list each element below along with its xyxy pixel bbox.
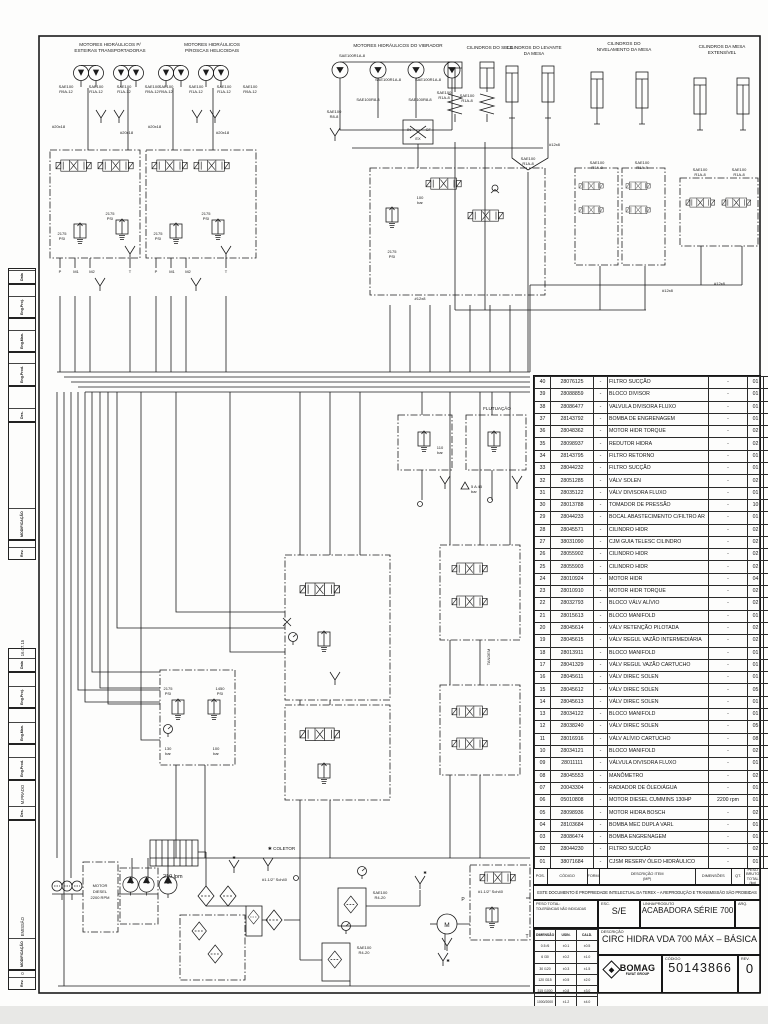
parts-row: 0228044230-FILTRO SUCÇÃO-02	[535, 844, 768, 856]
revision-field: Data16.07.15	[8, 648, 36, 672]
extension-cylinders	[694, 78, 749, 130]
svg-text:2200 RPM: 2200 RPM	[91, 895, 110, 900]
svg-text:✱ COLETOR: ✱ COLETOR	[268, 846, 296, 851]
svg-text:T: T	[129, 269, 132, 274]
rev-cell: REV. 0	[738, 955, 761, 993]
svg-text:T: T	[525, 934, 528, 940]
parts-row: 0528098936-MOTOR HIDRA BOSCH-02	[535, 807, 768, 819]
svg-text:PSI: PSI	[165, 691, 171, 696]
lift-cylinders	[506, 66, 554, 170]
svg-text:R1A-12: R1A-12	[117, 89, 131, 94]
col-dim: DIMENSÕES	[696, 869, 732, 884]
codigo-cell: CÓDIGO 50143866	[662, 955, 738, 993]
revision-field: Eng.Proj.	[8, 284, 36, 318]
parts-row: 1128016916-VÁLV ALÍVIO CARTUCHO-08	[535, 733, 768, 745]
seal-cylinders	[448, 62, 494, 122]
parts-row: 0428103684-BOMBA MEC DUPLA VARL-01	[535, 819, 768, 831]
svg-text:M2: M2	[89, 269, 95, 274]
parts-row: 2128015613-BLOCO MANIFOLD-01	[535, 610, 768, 622]
revision-field: Eng.Man.	[8, 318, 36, 352]
revision-field: Eng.Prod.	[8, 352, 36, 386]
arq-cell: ARQ.	[735, 900, 761, 928]
parts-row: 3728143792-BOMBA DE ENGRENAGEM-01	[535, 413, 768, 425]
svg-text:P: P	[461, 897, 465, 903]
parts-row: 0328086474-BOMBA ENGRENAGEM-01	[535, 831, 768, 843]
esc-cell: ESC. S/E	[598, 900, 640, 928]
parts-row: 1428045613-VÁLV DIREC SOLEN-01	[535, 696, 768, 708]
svg-text:TANDEM: TANDEM	[486, 649, 491, 666]
svg-text:R9A-12: R9A-12	[59, 89, 73, 94]
bomag-diamond-icon	[602, 960, 620, 978]
svg-text:P: P	[59, 269, 62, 274]
svg-text:DA MESA: DA MESA	[524, 51, 545, 56]
svg-text:bar: bar	[471, 489, 477, 494]
revision-field: Eng.Proj.	[8, 672, 36, 708]
svg-text:P: P	[155, 269, 158, 274]
svg-text:R9A-12: R9A-12	[145, 89, 159, 94]
revision-field: Eng.Man.	[8, 708, 36, 744]
parts-row: 2828045571-CILINDRO HIDR-02	[535, 524, 768, 536]
svg-text:SAE100R1A-8: SAE100R1A-8	[339, 53, 366, 58]
parts-row: 3928088859-BLOCO DIVISOR-01	[535, 389, 768, 401]
svg-text:NIVELAMENTO DA MESA: NIVELAMENTO DA MESA	[597, 47, 652, 52]
svg-text:210 lpm: 210 lpm	[163, 874, 183, 880]
svg-text:#12x8: #12x8	[662, 288, 674, 293]
svg-text:#12x8: #12x8	[549, 142, 561, 147]
svg-text:#20x18: #20x18	[216, 130, 230, 135]
disclaimer: ESTE DOCUMENTO É PROPRIEDADE INTELECTUAL…	[533, 885, 761, 900]
svg-text:CILINDROS DO LEVANTE: CILINDROS DO LEVANTE	[506, 45, 561, 50]
svg-text:T: T	[225, 269, 228, 274]
parts-table: 4028076125-FILTRO SUCÇÃO-013928088859-BL…	[533, 375, 761, 869]
svg-text:✱: ✱	[446, 958, 450, 963]
svg-text:PSI: PSI	[107, 216, 113, 221]
svg-text:R1A-8: R1A-8	[694, 172, 706, 177]
svg-text:PSI: PSI	[155, 236, 161, 241]
revision-field: Des.	[8, 386, 36, 422]
svg-text:R1A-8: R1A-8	[461, 98, 473, 103]
svg-text:SAE100R1A-8: SAE100R1A-8	[375, 77, 402, 82]
leveling-cylinders	[591, 72, 648, 124]
parts-row: 1328034122-BLOCO MANIFOLD-01	[535, 709, 768, 721]
svg-text:CILINDROS DA MESA: CILINDROS DA MESA	[699, 44, 747, 49]
svg-text:FLUTUAÇÃO: FLUTUAÇÃO	[483, 405, 511, 411]
svg-text:#20x18: #20x18	[52, 124, 66, 129]
svg-text:SAE100R1A-8: SAE100R1A-8	[415, 77, 442, 82]
svg-text:R4-20: R4-20	[375, 895, 387, 900]
col-desc: DESCRIÇÃO ITEM(MP)	[600, 869, 696, 884]
parts-row: 3228051285-VÁLV SOLEN-02	[535, 475, 768, 487]
svg-text:R1A-8: R1A-8	[733, 172, 745, 177]
relief-extras	[283, 482, 493, 645]
svg-text:MOTORES HIDRÁULICOS: MOTORES HIDRÁULICOS	[184, 41, 240, 47]
svg-text:R9A-12: R9A-12	[159, 89, 173, 94]
svg-text:P/ROSCAS HELICOIDAIS: P/ROSCAS HELICOIDAIS	[185, 48, 239, 53]
revision-field: Eng.Prod.	[8, 744, 36, 780]
parts-row: 0605010808-MOTOR DIESEL CUMMINS 130HP220…	[535, 795, 768, 807]
svg-text:#1.1/2" Sch40: #1.1/2" Sch40	[478, 889, 504, 894]
svg-text:R1A-12: R1A-12	[217, 89, 231, 94]
parts-row: 3328044232-FILTRO SUCÇÃO-01	[535, 463, 768, 475]
peso-cell: PESO TOTAL: TOLERÂNCIAS NÃO INDICADAS	[533, 900, 598, 928]
group-labels: MOTORES HIDRÁULICOS P/ ESTEIRAS TRANSPOR…	[74, 41, 746, 56]
svg-text:M1: M1	[73, 269, 79, 274]
parts-row: 0928011111-VÁLVULA DIVISORA FLUXO-01	[535, 758, 768, 770]
parts-row: 3628048362-MOTOR HIDR TORQUE-02	[535, 426, 768, 438]
parts-row: 1028034121-BLOCO MANIFOLD-02	[535, 745, 768, 757]
parts-table-header: POS. CÓDIGO FORM. DESCRIÇÃO ITEM(MP) DIM…	[533, 868, 761, 885]
svg-text:PSI: PSI	[203, 216, 209, 221]
svg-text:SAE100R8-8: SAE100R8-8	[356, 97, 380, 102]
parts-row: 1528045612-VÁLV DIREC SOLEN-05	[535, 684, 768, 696]
svg-text:✱: ✱	[232, 855, 236, 860]
svg-text:✱: ✱	[423, 870, 427, 875]
svg-text:R8-8: R8-8	[330, 114, 339, 119]
descricao-cell: DESCRIÇÃO CIRC HIDRA VDA 700 MÁX – BÁSIC…	[598, 928, 761, 955]
svg-text:R1A-8: R1A-8	[522, 161, 534, 166]
svg-text:EXTENSÍVEL: EXTENSÍVEL	[708, 49, 737, 55]
power-pack	[52, 840, 457, 981]
parts-row: 3128035122-VÁLV DIVISORA FLUXO-01	[535, 487, 768, 499]
svg-text:#12x8: #12x8	[714, 281, 726, 286]
svg-text:CILINDROS DO: CILINDROS DO	[607, 41, 641, 46]
col-codigo: CÓDIGO	[548, 869, 588, 884]
parts-row: 1628045611-VÁLV DIREC SOLEN-01	[535, 672, 768, 684]
svg-text:MOTOR: MOTOR	[93, 883, 108, 888]
svg-text:MOTORES HIDRÁULICOS DO VIBRADO: MOTORES HIDRÁULICOS DO VIBRADOR	[353, 42, 443, 48]
revision-field: MODIFICAÇÃO	[8, 422, 36, 540]
revision-field: Des.M.PRADO	[8, 780, 36, 820]
svg-text:ESTEIRAS TRANSPORTADORAS: ESTEIRAS TRANSPORTADORAS	[74, 48, 145, 53]
svg-text:R1A-8: R1A-8	[438, 95, 450, 100]
parts-row: 1728041329-VÁLV REGUL VAZÃO CARTUCHO-01	[535, 659, 768, 671]
parts-row: 4028076125-FILTRO SUCÇÃO-01	[535, 377, 768, 389]
linha-cell: LINHA/PRODUTO ACABADORA SÉRIE 700	[640, 900, 735, 928]
vibrator-motors	[330, 62, 460, 144]
svg-text:PSI: PSI	[389, 254, 395, 259]
parts-row: 2428010924-MOTOR HIDR-04	[535, 573, 768, 585]
svg-text:#20x18: #20x18	[120, 130, 134, 135]
svg-text:EX: EX	[415, 136, 421, 141]
parts-row: 2228032793-BLOCO VÁLV ALÍVIO-02	[535, 598, 768, 610]
parts-row: 3828086477-VALVULA DIVISORA FLUXO-01	[535, 401, 768, 413]
svg-text:#20x18: #20x18	[148, 124, 162, 129]
svg-text:R1A-12: R1A-12	[189, 89, 203, 94]
parts-row: 3528098937-REDUTOR HIDRA-02	[535, 438, 768, 450]
parts-row: 0828045553-MANÔMETRO-02	[535, 770, 768, 782]
col-qt: QT.	[732, 869, 746, 884]
svg-text:bar: bar	[417, 200, 423, 205]
revision-field: MODIFICAÇÃOEMISSÃO	[8, 820, 36, 970]
track-motors	[74, 66, 229, 124]
col-pos: POS.	[534, 869, 548, 884]
drawing-sheet: MOTORES HIDRÁULICOS P/ ESTEIRAS TRANSPOR…	[0, 0, 768, 1006]
revision-strip-bottom: Rev.0MODIFICAÇÃOEMISSÃODes.M.PRADOEng.Pr…	[8, 648, 38, 990]
parts-row: 2628055902-CILINDRO HIDR-02	[535, 549, 768, 561]
svg-text:SAE100R8-8: SAE100R8-8	[408, 97, 432, 102]
parts-row: 2528055903-CILINDRO HIDR-02	[535, 561, 768, 573]
col-peso: PESO BRUTOTOTAL (kg)	[745, 869, 760, 884]
parts-row: 3428143795-FILTRO RETORNO-01	[535, 450, 768, 462]
tolerance-table: DIMENSÃO DE/AUSIN.CALD.0.5 /6±0.1±0.56 /…	[533, 928, 598, 993]
revision-field: Rev.0	[8, 970, 36, 990]
svg-text:R1A-12: R1A-12	[89, 89, 103, 94]
svg-text:IN: IN	[407, 127, 411, 132]
parts-row: 3028013788-TOMADOR DE PRESSÃO-10	[535, 499, 768, 511]
svg-text:bar: bar	[437, 450, 443, 455]
svg-text:R1A-8: R1A-8	[591, 165, 603, 170]
svg-text:R1A-8: R1A-8	[636, 165, 648, 170]
svg-text:M2: M2	[185, 269, 191, 274]
parts-row: 2928044233-BOCAL ABASTECIMENTO C/FILTRO …	[535, 512, 768, 524]
parts-row: 2028045614-VÁLV RETENÇÃO PILOTADA-02	[535, 622, 768, 634]
svg-text:MOTORES HIDRÁULICOS P/: MOTORES HIDRÁULICOS P/	[79, 41, 141, 47]
svg-text:R9A-12: R9A-12	[243, 89, 257, 94]
parts-row: 1928045615-VÁLV REGUL VAZÃO INTERMEDIÁRI…	[535, 635, 768, 647]
svg-text:bar: bar	[165, 751, 171, 756]
svg-text:M1: M1	[169, 269, 175, 274]
svg-text:#1.1/2" Sch40: #1.1/2" Sch40	[262, 877, 288, 882]
svg-text:bar: bar	[213, 751, 219, 756]
parts-row: 1228038240-VÁLV DIREC SOLEN-05	[535, 721, 768, 733]
svg-text:#12x8: #12x8	[415, 296, 427, 301]
svg-text:DIESEL: DIESEL	[93, 889, 108, 894]
parts-row: 0720043304-RADIADOR DE ÓLEO/ÁGUA-01	[535, 782, 768, 794]
parts-row: 1828013911-BLOCO MANIFOLD-01	[535, 647, 768, 659]
svg-text:CF: CF	[426, 127, 432, 132]
svg-text:PSI: PSI	[217, 691, 223, 696]
revision-strip-top: Rev.MODIFICAÇÃODes.Eng.Prod.Eng.Man.Eng.…	[8, 268, 38, 560]
svg-text:PSI: PSI	[59, 236, 65, 241]
revision-field: Rev.	[8, 540, 36, 560]
revision-field: Data	[8, 268, 36, 284]
parts-row: 0138071684-CJSM RESERV ÓLEO HIDRÁULICO-0…	[535, 856, 768, 868]
parts-row: 2328010910-MOTOR HIDR TORQUE-02	[535, 586, 768, 598]
svg-text:R4-20: R4-20	[359, 950, 371, 955]
svg-text:M: M	[444, 922, 449, 929]
brand-cell: BOMAG FAYAT GROUP	[598, 955, 662, 993]
parts-row: 2738031090-CJM GUIA TELESC CILINDRO-02	[535, 536, 768, 548]
col-form: FORM.	[588, 869, 600, 884]
